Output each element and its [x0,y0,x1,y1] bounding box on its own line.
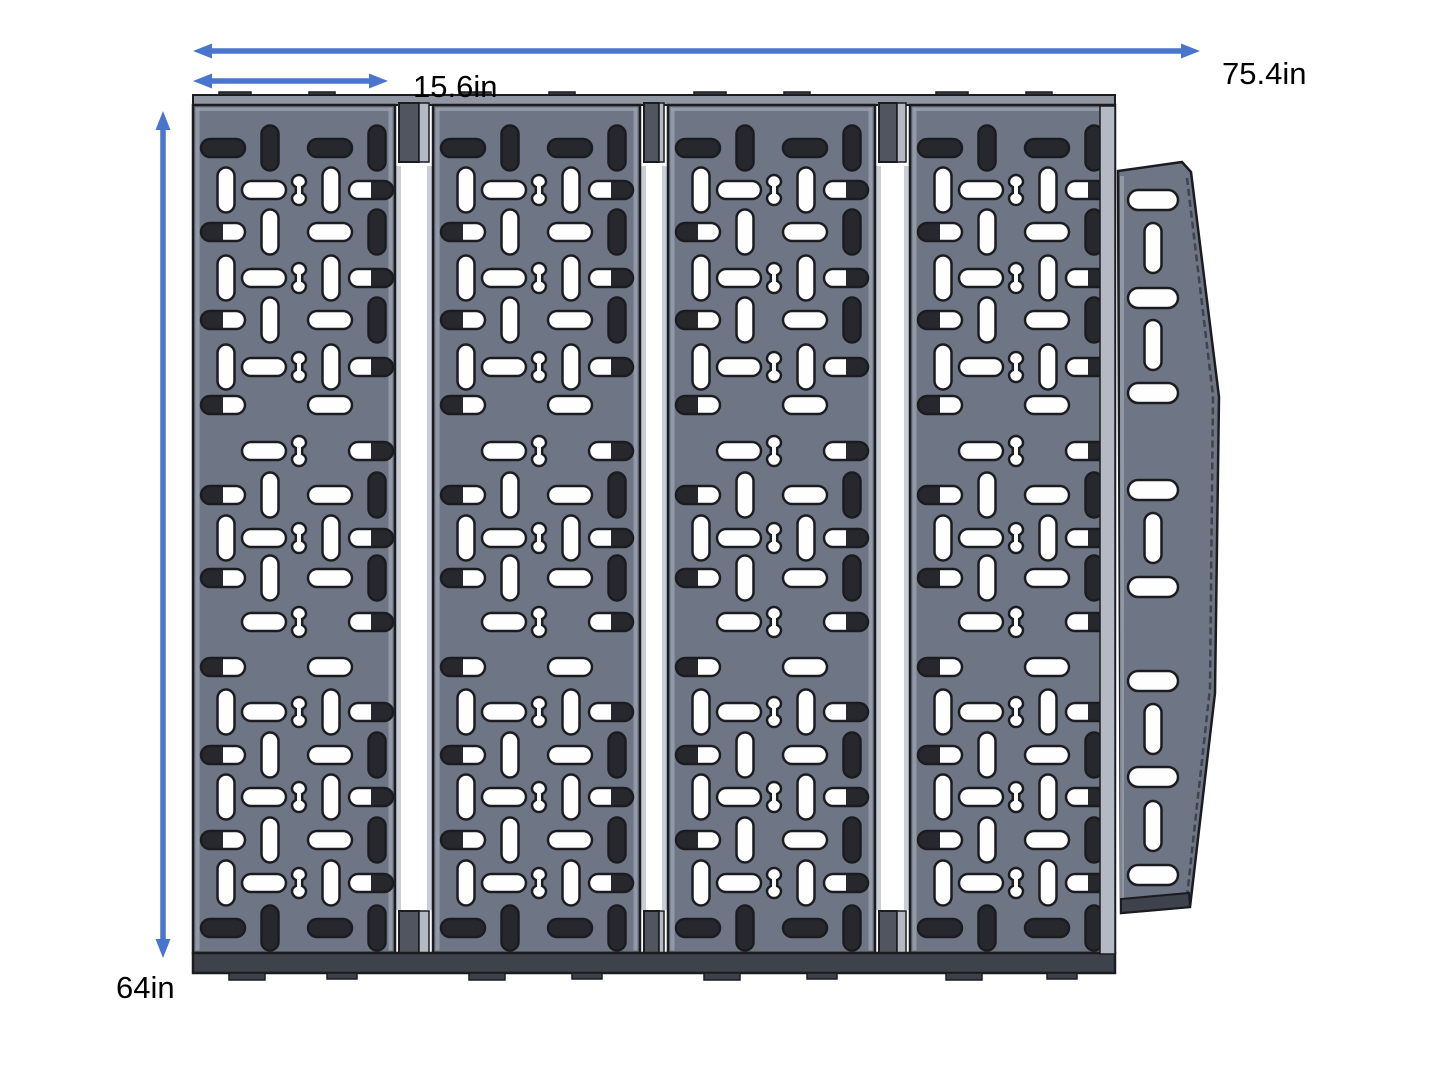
slot-hole [717,788,761,806]
connector-flange-top [419,103,429,162]
slot-hole [1128,383,1178,403]
slot-hole [783,311,827,329]
slot-hole [369,556,386,601]
slot-hole [798,775,815,820]
slot-hole [1145,704,1162,754]
slot-hole [502,733,519,778]
slot-hole [1128,577,1178,597]
slot-hole [676,831,720,849]
slot-hole [548,139,592,157]
slot-hole [242,181,286,199]
slot-hole [548,223,592,241]
slot-hole [441,746,485,764]
side-wing-panel [1100,106,1219,954]
gap-flange-line [904,166,909,910]
slot-hole [783,396,827,414]
deck-panel-2 [433,105,640,953]
slot-hole [369,210,386,255]
slot-hole [918,223,962,241]
gap-flange-line [662,166,667,910]
connector-tab-top [399,103,419,162]
panel-edge-highlight [671,108,873,112]
slot-hole [609,906,626,951]
slot-hole [844,126,861,171]
slot-hole [349,874,393,892]
bottom-tab [229,973,265,980]
slot-hole [609,818,626,863]
connector-flange-bottom [659,911,664,955]
slot-hole [201,746,245,764]
slot-hole [323,775,340,820]
slot-hole [1145,513,1162,563]
bottom-tab [807,973,837,979]
slot-hole [262,818,279,863]
slot-hole [959,529,1003,547]
slot-hole [717,703,761,721]
slot-hole [717,613,761,631]
wing-face [1118,162,1219,913]
slot-hole [369,818,386,863]
bottom-tab [469,973,505,980]
slot-hole [1145,801,1162,851]
slot-hole [242,613,286,631]
slot-hole [308,311,352,329]
slot-hole [676,486,720,504]
slot-hole [308,831,352,849]
slot-hole [935,861,952,906]
slot-hole [609,126,626,171]
slot-hole [824,442,868,460]
bottom-rail [193,953,1115,980]
slot-hole [609,733,626,778]
slot-hole [458,168,475,213]
slot-hole [717,269,761,287]
deck-panel-3 [668,105,875,953]
slot-hole [1128,767,1178,787]
slot-hole [1145,320,1162,370]
slot-hole [458,256,475,301]
arrowhead-left [193,74,212,89]
slot-hole [824,613,868,631]
slot-hole [676,658,720,676]
slot-hole [959,788,1003,806]
slot-hole [458,775,475,820]
connector-flange-bottom [897,911,906,955]
slot-hole [323,861,340,906]
slot-hole [783,919,827,937]
bottom-tab [946,973,982,980]
connector-flange-top [659,103,664,162]
slot-hole [482,181,526,199]
slot-hole [979,126,996,171]
slot-hole [959,269,1003,287]
panel-edge-highlight [389,108,393,951]
assembly-drawing: 75.4in 15.6in 64in [0,0,1445,1084]
slot-hole [1025,569,1069,587]
slot-hole [548,396,592,414]
slot-hole [308,569,352,587]
generated-geometry [156,44,1220,981]
slot-hole [218,690,235,735]
slot-hole [1025,139,1069,157]
slot-hole [693,168,710,213]
slot-hole [1128,865,1178,885]
slot-hole [918,311,962,329]
slot-hole [918,139,962,157]
slot-hole [482,269,526,287]
arrowhead-down [156,939,171,958]
slot-hole [693,256,710,301]
slot-hole [441,396,485,414]
slot-hole [502,210,519,255]
slot-hole [349,181,393,199]
slot-hole [308,658,352,676]
slot-hole [201,139,245,157]
slot-hole [918,486,962,504]
slot-hole [824,788,868,806]
dimension-label-height: 64in [116,970,175,1005]
connector-tab-top [879,103,897,162]
slot-hole [548,831,592,849]
slot-hole [482,442,526,460]
connector-tab-bottom [644,911,659,955]
slot-hole [935,168,952,213]
deck-panel-1 [193,105,395,953]
slot-hole [798,168,815,213]
panel-edge-highlight [436,108,638,112]
slot-hole [693,690,710,735]
slot-hole [349,613,393,631]
slot-hole [482,788,526,806]
slot-hole [1025,396,1069,414]
slot-hole [1025,919,1069,937]
slot-hole [242,358,286,376]
slot-hole [717,358,761,376]
slot-hole [737,818,754,863]
slot-hole [589,613,633,631]
slot-hole [959,181,1003,199]
slot-hole [959,613,1003,631]
slot-hole [441,919,485,937]
slot-hole [323,168,340,213]
slot-hole [979,818,996,863]
slot-hole [589,358,633,376]
slot-hole [308,919,352,937]
slot-hole [502,556,519,601]
slot-hole [783,746,827,764]
slot-hole [502,906,519,951]
bottom-rail-band [193,953,1115,973]
slot-hole [676,919,720,937]
panel-edge-highlight [671,108,675,951]
slot-hole [676,311,720,329]
slot-hole [349,358,393,376]
slot-hole [824,181,868,199]
slot-hole [441,658,485,676]
slot-hole [1128,190,1178,210]
slot-hole [1040,690,1057,735]
slot-hole [1025,658,1069,676]
slot-hole [979,906,996,951]
slot-hole [1040,168,1057,213]
slot-hole [737,210,754,255]
slot-hole [979,556,996,601]
slot-hole [1025,311,1069,329]
arrowhead-right [1181,44,1200,59]
slot-hole [979,298,996,343]
slot-hole [563,775,580,820]
slot-hole [844,733,861,778]
slot-hole [798,516,815,561]
slot-hole [844,906,861,951]
arrowhead-right [369,74,388,89]
slot-hole [458,861,475,906]
slot-hole [589,788,633,806]
connector-flange-top [897,103,906,162]
bottom-tab [327,973,357,979]
slot-hole [369,298,386,343]
slot-hole [218,256,235,301]
slot-hole [737,733,754,778]
slot-hole [201,919,245,937]
slot-hole [548,746,592,764]
slot-hole [918,746,962,764]
gap-flange-line [427,166,432,910]
slot-hole [262,126,279,171]
slot-hole [201,311,245,329]
slot-hole [589,442,633,460]
slot-hole [935,775,952,820]
slot-hole [1040,516,1057,561]
slot-hole [609,473,626,518]
slot-hole [242,703,286,721]
slot-hole [441,223,485,241]
slot-hole [242,269,286,287]
gap-flange-line [876,166,881,910]
slot-hole [441,139,485,157]
slot-hole [783,658,827,676]
dimension-label-panel-width: 15.6in [413,69,497,104]
slot-hole [458,345,475,390]
slot-hole [502,126,519,171]
slot-hole [918,919,962,937]
slot-hole [308,746,352,764]
slot-hole [824,874,868,892]
slot-hole [349,529,393,547]
connector-tab-top [644,103,659,162]
slot-hole [201,396,245,414]
slot-hole [844,298,861,343]
slot-hole [482,613,526,631]
slot-hole [349,788,393,806]
slot-hole [676,223,720,241]
bottom-tab [572,973,602,979]
slot-hole [1025,223,1069,241]
slot-hole [798,690,815,735]
slot-hole [369,473,386,518]
slot-hole [589,703,633,721]
slot-hole [783,831,827,849]
gap-flange-line [641,166,646,910]
diagram-canvas: 75.4in 15.6in 64in [0,0,1445,1084]
slot-hole [242,788,286,806]
slot-hole [676,396,720,414]
slot-hole [737,298,754,343]
panel-gap-3 [876,103,909,955]
slot-hole [349,269,393,287]
slot-hole [783,486,827,504]
slot-hole [918,569,962,587]
slot-hole [262,298,279,343]
slot-hole [502,818,519,863]
slot-hole [441,311,485,329]
slot-hole [609,556,626,601]
slot-hole [262,210,279,255]
slot-hole [262,733,279,778]
slot-hole [1040,861,1057,906]
slot-hole [676,569,720,587]
slot-hole [563,345,580,390]
wing-mount-flange [1100,106,1115,954]
slot-hole [693,516,710,561]
slot-hole [308,139,352,157]
slot-hole [323,345,340,390]
panel-edge-highlight [196,108,393,112]
slot-hole [824,529,868,547]
slot-hole [589,874,633,892]
slot-hole [218,775,235,820]
slot-hole [369,906,386,951]
panel-edge-highlight [196,108,200,951]
slot-hole [844,556,861,601]
slot-hole [218,861,235,906]
slot-hole [482,358,526,376]
slot-hole [959,703,1003,721]
slot-hole [935,345,952,390]
panel-gap-2 [641,103,667,955]
slot-hole [676,139,720,157]
slot-hole [349,703,393,721]
slot-hole [308,396,352,414]
slot-hole [201,569,245,587]
slot-hole [563,168,580,213]
gap-flange-line [396,166,401,910]
slot-hole [323,516,340,561]
slot-hole [935,256,952,301]
slot-hole [308,486,352,504]
slot-hole [369,126,386,171]
slot-hole [563,516,580,561]
slot-hole [798,345,815,390]
slot-hole [218,168,235,213]
slot-hole [482,703,526,721]
slot-hole [1128,671,1178,691]
slot-hole [502,473,519,518]
slot-hole [1025,746,1069,764]
slot-hole [918,658,962,676]
arrowhead-left [193,44,212,59]
slot-hole [935,516,952,561]
slot-hole [201,223,245,241]
slot-hole [548,569,592,587]
panel-edge-highlight [634,108,638,951]
connector-tab-bottom [879,911,897,955]
slot-hole [262,473,279,518]
slot-hole [693,775,710,820]
slot-hole [844,210,861,255]
slot-hole [201,658,245,676]
arrowhead-up [156,111,171,130]
slot-hole [482,874,526,892]
slot-hole [242,529,286,547]
slot-hole [693,861,710,906]
horizontal-dimension-arrow [193,74,388,89]
deck-panel-4 [910,105,1115,953]
slot-hole [201,486,245,504]
slot-hole [589,269,633,287]
slot-hole [1128,288,1178,308]
slot-hole [737,473,754,518]
slot-hole [693,345,710,390]
slot-hole [824,703,868,721]
slot-hole [458,690,475,735]
panel-edge-highlight [913,108,917,951]
slot-hole [717,442,761,460]
slot-hole [589,529,633,547]
connector-tab-bottom [399,911,419,955]
slot-hole [824,269,868,287]
slot-hole [1040,256,1057,301]
slot-hole [441,569,485,587]
slot-hole [844,818,861,863]
dimension-label-total-width: 75.4in [1222,56,1306,91]
slot-hole [717,874,761,892]
connector-flange-bottom [419,911,429,955]
slot-hole [959,874,1003,892]
slot-hole [349,442,393,460]
slot-hole [218,345,235,390]
slot-hole [609,298,626,343]
vertical-dimension-arrow [156,111,171,958]
slot-hole [798,861,815,906]
slot-hole [717,181,761,199]
slot-hole [979,733,996,778]
slot-hole [676,746,720,764]
panel-edge-highlight [436,108,440,951]
slot-hole [844,473,861,518]
slot-hole [1040,345,1057,390]
slot-hole [548,311,592,329]
slot-hole [717,529,761,547]
slot-hole [563,861,580,906]
slot-hole [783,223,827,241]
slot-hole [783,569,827,587]
slot-hole [262,906,279,951]
slot-hole [369,733,386,778]
slot-hole [563,690,580,735]
slot-hole [242,442,286,460]
wing-edge-highlight [1120,176,1124,898]
slot-hole [458,516,475,561]
slot-hole [1025,486,1069,504]
slot-hole [201,831,245,849]
slot-hole [737,556,754,601]
slot-hole [918,396,962,414]
slot-hole [563,256,580,301]
slot-hole [959,442,1003,460]
slot-hole [589,181,633,199]
slot-hole [441,486,485,504]
